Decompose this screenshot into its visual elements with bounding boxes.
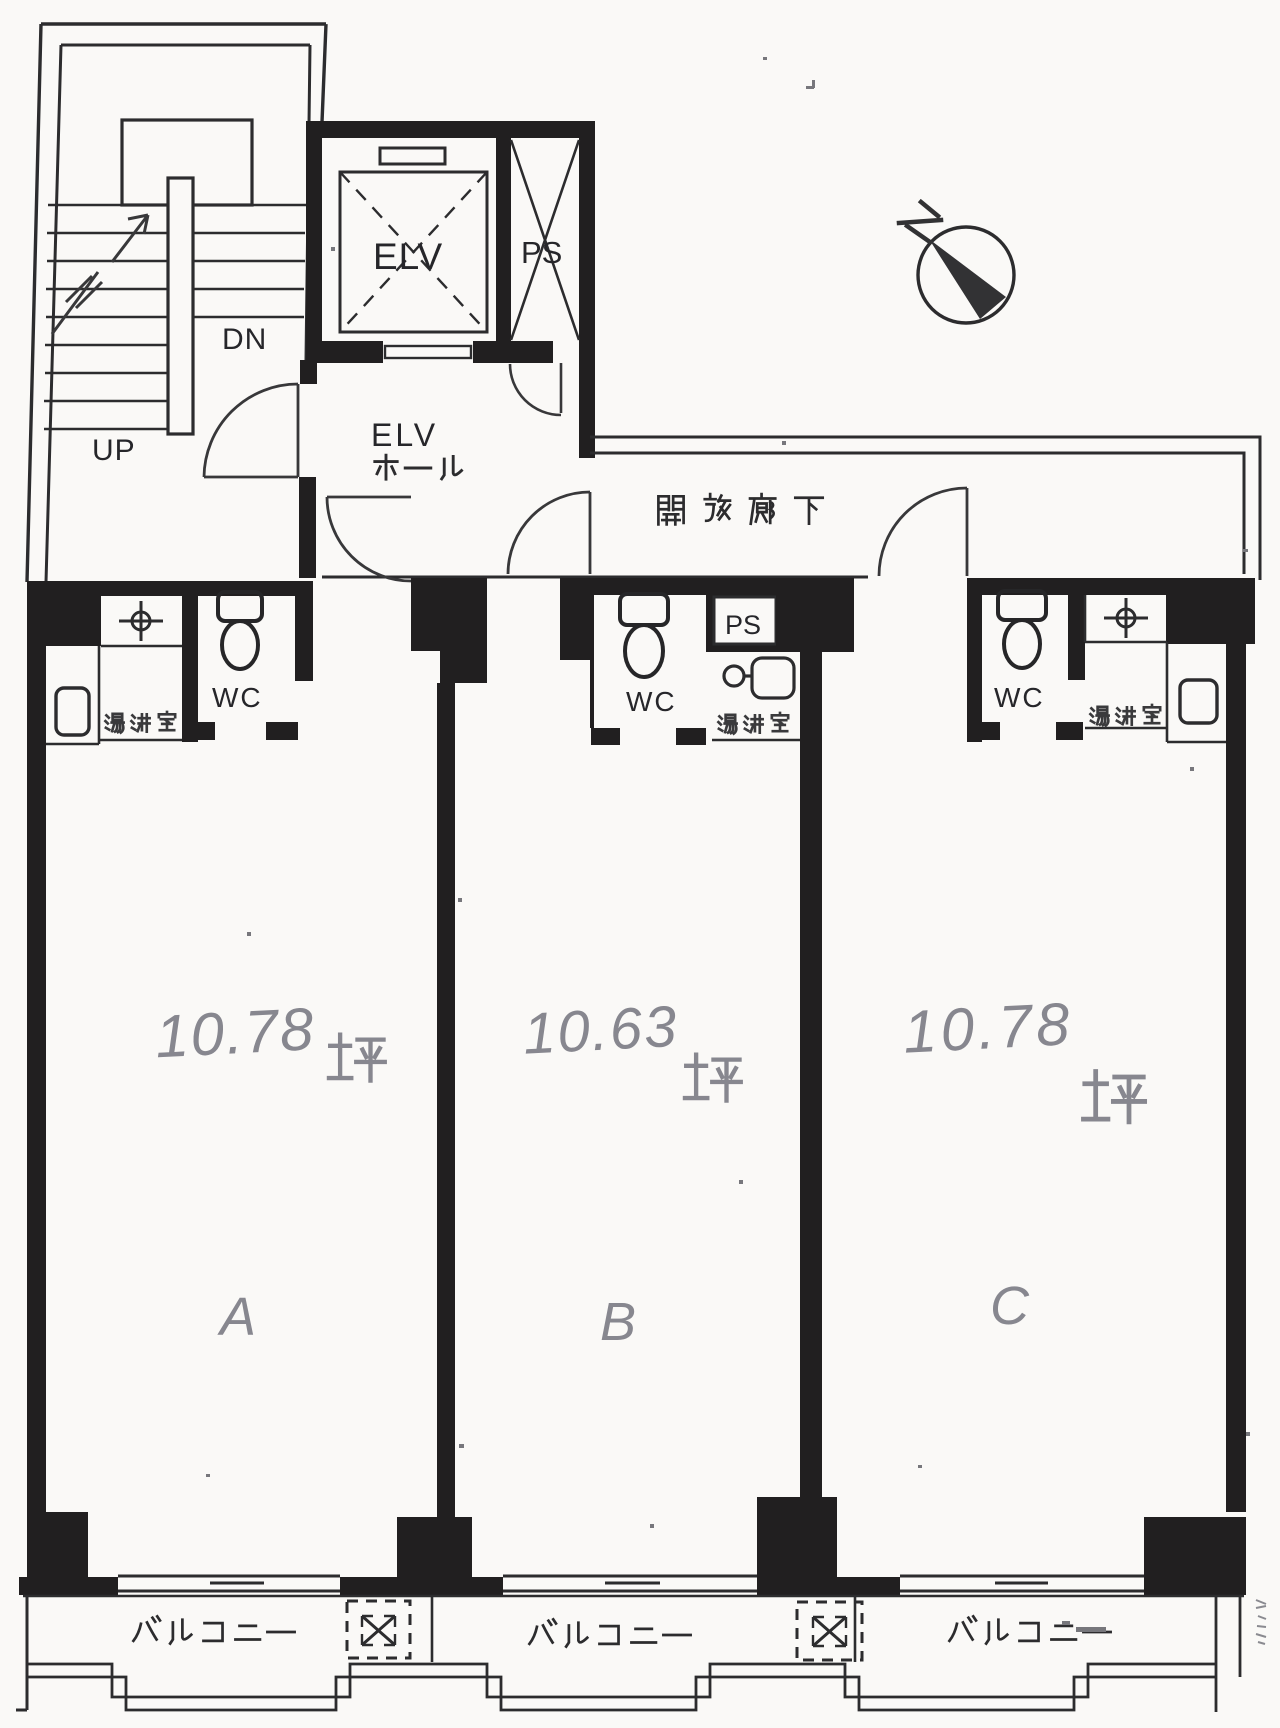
svg-text:DN: DN [222,323,267,356]
svg-text:WC: WC [626,686,677,717]
svg-text:C: C [990,1276,1030,1336]
svg-text:10.78: 10.78 [153,995,316,1070]
svg-text:PS: PS [725,610,761,640]
svg-text:PS: PS [521,235,562,270]
svg-text:A: A [217,1287,256,1347]
svg-text:10.78: 10.78 [902,990,1075,1066]
svg-text:ELV: ELV [371,417,438,453]
svg-text:10.63: 10.63 [522,994,680,1067]
svg-text:UP: UP [92,434,136,467]
svg-text:WC: WC [212,682,263,713]
svg-text:ELV: ELV [373,236,443,277]
svg-text:B: B [600,1292,636,1352]
svg-text:WC: WC [994,682,1045,713]
